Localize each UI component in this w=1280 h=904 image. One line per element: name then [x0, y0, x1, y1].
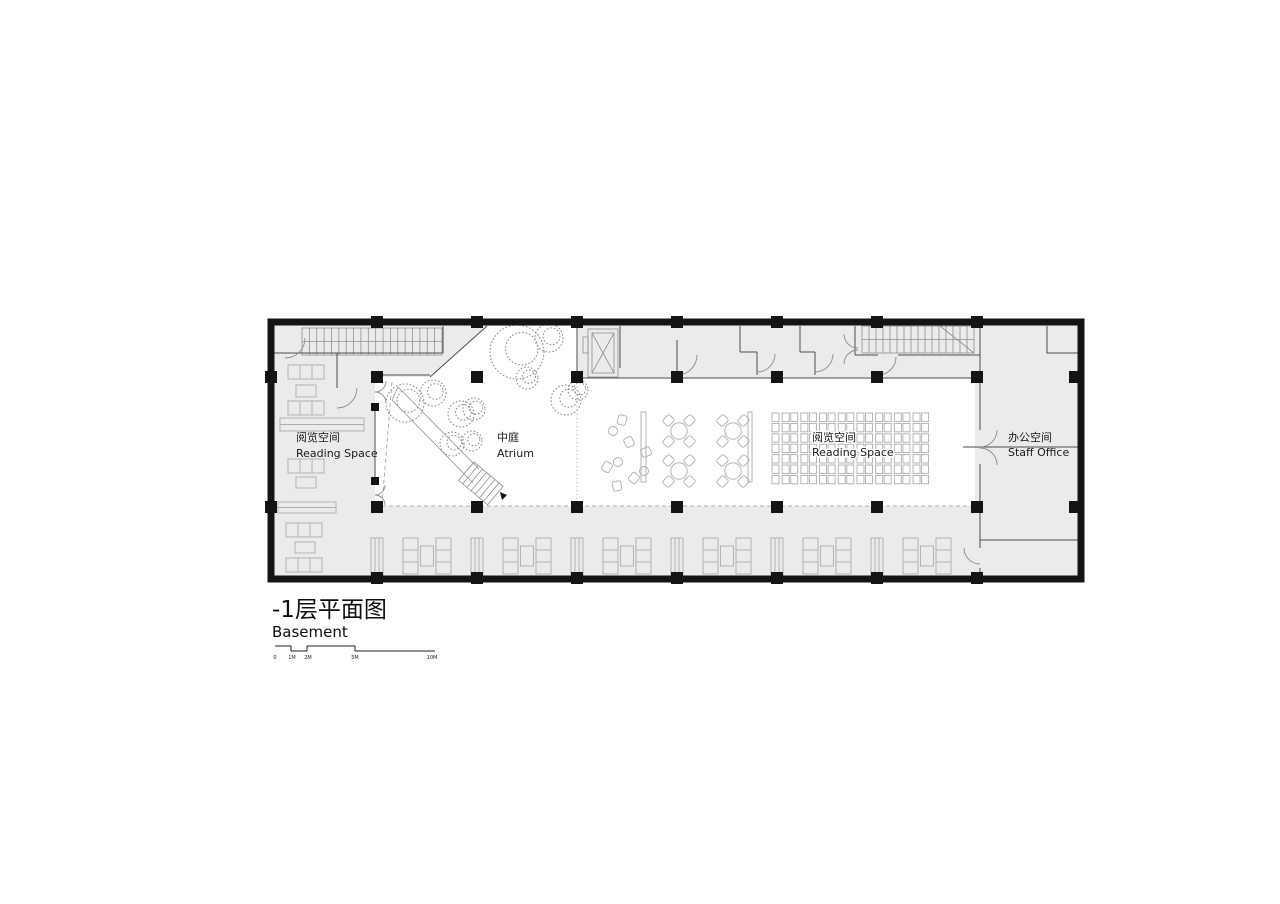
- floor-plan-drawing: 阅览空间 Reading Space 中庭 Atrium 阅览空间 Readin…: [0, 0, 1280, 904]
- plan-title-zh: -1层平面图: [272, 597, 387, 623]
- room-label-atrium-en: Atrium: [497, 447, 534, 460]
- scale-label-5m: 5M: [351, 655, 359, 661]
- scale-label-1m: 1M: [288, 655, 296, 661]
- room-label-reading-left-en: Reading Space: [296, 447, 378, 460]
- room-label-staff-office-en: Staff Office: [1008, 446, 1069, 459]
- scale-bar-line: [275, 646, 435, 651]
- door-jamb: [371, 403, 379, 411]
- scale-label-2m: 2M: [304, 655, 312, 661]
- room-label-reading-center-zh: 阅览空间: [812, 430, 856, 444]
- room-label-reading-left-zh: 阅览空间: [296, 430, 340, 444]
- room-label-atrium-zh: 中庭: [497, 430, 519, 444]
- drawing-sheet: 阅览空间 Reading Space 中庭 Atrium 阅览空间 Readin…: [0, 0, 1280, 904]
- scale-bar: 0 1M 2M 5M 10M: [273, 646, 437, 661]
- scale-label-0: 0: [273, 655, 276, 661]
- room-label-reading-center-en: Reading Space: [812, 446, 894, 459]
- room-label-staff-office-zh: 办公空间: [1008, 430, 1052, 444]
- plan-title: -1层平面图 Basement: [272, 597, 387, 641]
- plan-title-en: Basement: [272, 623, 348, 641]
- door-jamb: [371, 477, 379, 485]
- scale-label-10m: 10M: [427, 655, 438, 661]
